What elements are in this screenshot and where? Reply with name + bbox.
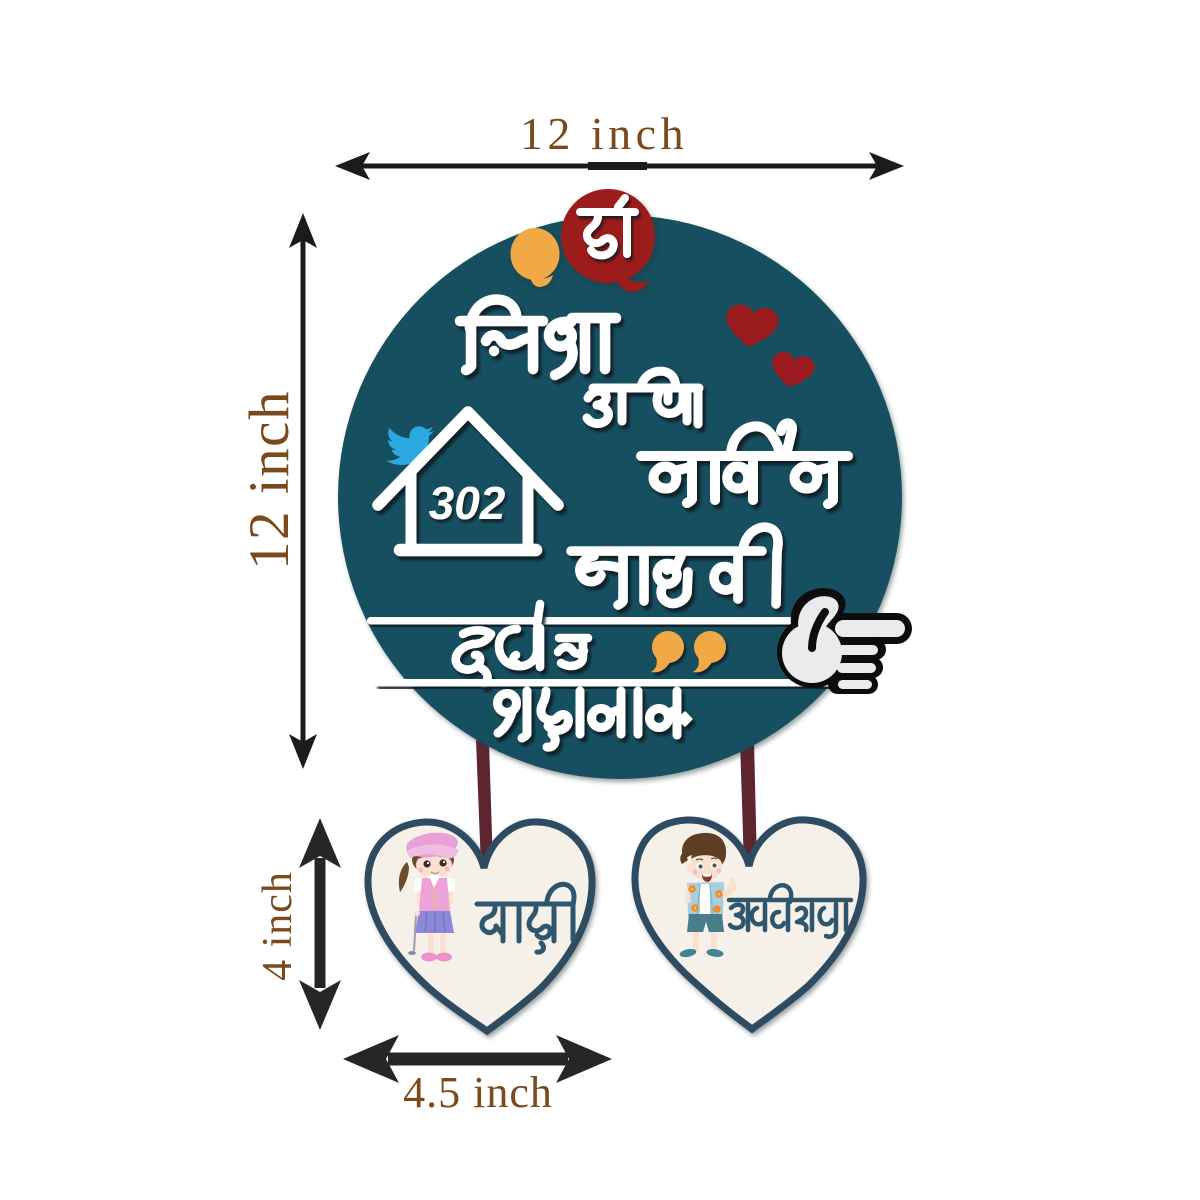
svg-text:4 inch: 4 inch xyxy=(255,871,301,981)
svg-text:12 inch: 12 inch xyxy=(238,390,301,570)
svg-text:4.5 inch: 4.5 inch xyxy=(403,1068,553,1117)
svg-text:302: 302 xyxy=(429,477,506,529)
svg-text:12 inch: 12 inch xyxy=(520,108,688,159)
